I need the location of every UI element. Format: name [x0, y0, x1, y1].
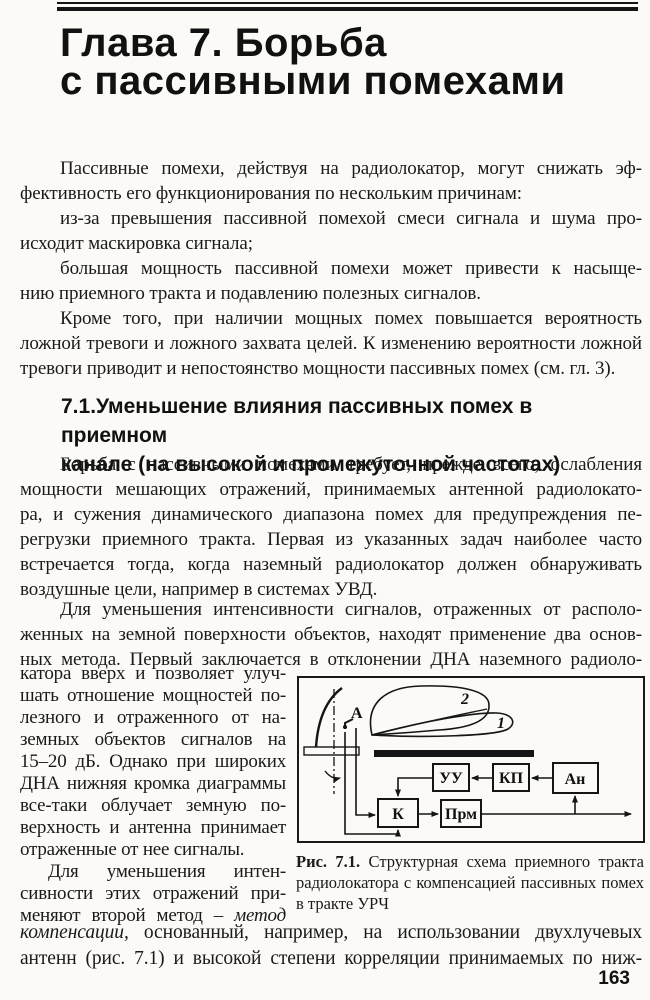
text-line: компенсации, основанный, например, на ис…	[20, 920, 642, 946]
antenna-pedestal	[304, 747, 359, 755]
left-text-column: катора вверх и позволяет улуч- шать отно…	[20, 663, 286, 927]
text-line: тревоги приводит и непостоянство мощност…	[20, 356, 642, 381]
paragraph-dva-metoda: Для уменьшения интенсивности сигналов, о…	[20, 597, 642, 672]
top-rule-thick	[57, 7, 638, 11]
text-line: антенн (рис. 7.1) и высокой степени корр…	[20, 946, 642, 972]
beam-upper-label: 2	[460, 691, 469, 708]
figure-7-1-diagram: А 2 1 УУ КП Ан К Прм	[299, 678, 639, 837]
chapter-title: Глава 7. Борьба с пассивными помехами	[60, 24, 566, 100]
text-line: регрузки приемного тракта. Первая из ука…	[20, 527, 642, 552]
link-feed-k-left	[356, 728, 375, 815]
block-uu-label: УУ	[439, 770, 463, 787]
caption-text: Структурная схема приемного тракта	[360, 852, 644, 871]
top-rule-thin	[57, 2, 638, 4]
beam-lobe-upper	[371, 686, 490, 735]
text-line: катора вверх и позволяет улуч-	[20, 663, 286, 685]
text-run-italic: компенсации,	[20, 922, 129, 943]
bottom-paragraph: компенсации, основанный, например, на ис…	[20, 920, 642, 972]
beam-lobe-lower	[372, 713, 513, 736]
link-uu-k	[398, 778, 433, 796]
paragraph-borba: Борьба с пассивными помехами требует, пр…	[20, 452, 642, 602]
text-line: земных объектов сигналов на	[20, 729, 286, 751]
caption-line: в тракте УРЧ	[296, 893, 644, 914]
caption-number: Рис. 7.1.	[296, 852, 360, 871]
text-line: ложной тревоги и ложного захвата целей. …	[20, 331, 642, 356]
text-line: Пассивные помехи, действуя на радиолокат…	[20, 156, 642, 181]
text-line: нию приемного тракта и подавлению полезн…	[20, 281, 642, 306]
text-line: ра, и сужения динамического диапазона по…	[20, 502, 642, 527]
figure-caption: Рис. 7.1. Структурная схема приемного тр…	[296, 851, 644, 914]
block-prm-label: Прм	[445, 806, 477, 823]
text-line: шать отношение мощностей по-	[20, 685, 286, 707]
book-page: Глава 7. Борьба с пассивными помехами Па…	[0, 0, 650, 1000]
text-line: встречается тогда, когда наземный радиол…	[20, 552, 642, 577]
text-line: мощности мешающих отражений, принимаемых…	[20, 477, 642, 502]
block-kp-label: КП	[499, 770, 524, 787]
text-line: верхность и антенна принимает	[20, 817, 286, 839]
text-line: фективность его функционирования по неск…	[20, 181, 642, 206]
text-line: женных на земной поверхности объектов, н…	[20, 622, 642, 647]
chapter-title-line1: Глава 7. Борьба	[60, 24, 566, 62]
figure-7-1: А 2 1 УУ КП Ан К Прм	[297, 676, 645, 843]
text-line: ДНА нижняя кромка диаграммы	[20, 773, 286, 795]
intro-paragraphs: Пассивные помехи, действуя на радиолокат…	[20, 156, 642, 381]
page-number: 163	[598, 968, 630, 990]
text-line: 15–20 дБ. Однако при широких	[20, 751, 286, 773]
caption-line: радиолокатора с компенсацией пассивных п…	[296, 872, 644, 893]
text-line: лезного и отраженного от на-	[20, 707, 286, 729]
text-line: исходит маскировка сигнала;	[20, 231, 642, 256]
text-line: Борьба с пассивными помехами требует, пр…	[20, 452, 642, 477]
text-line: большая мощность пассивной помехи может …	[20, 256, 642, 281]
caption-line: Рис. 7.1. Структурная схема приемного тр…	[296, 851, 644, 872]
text-line: Для уменьшения интен-	[20, 861, 286, 883]
antenna-reflector-arc	[316, 688, 342, 747]
text-line: отраженные от нее сигналы.	[20, 839, 286, 861]
ground-bar	[374, 750, 534, 757]
text-line: из-за превышения пассивной помехой смеси…	[20, 206, 642, 231]
beam-lower-label: 1	[497, 715, 505, 732]
text-line: все-таки облучает земную по-	[20, 795, 286, 817]
text-line: сивности этих отражений при-	[20, 883, 286, 905]
text-line: Кроме того, при наличии мощных помех пов…	[20, 306, 642, 331]
feed-point	[343, 725, 347, 729]
antenna-label: А	[351, 705, 363, 722]
block-an-label: Ан	[565, 771, 586, 788]
text-run: основанный, например, на использовании д…	[129, 922, 642, 943]
chapter-title-line2: с пассивными помехами	[60, 62, 566, 100]
section-heading-line1: 7.1.Уменьшение влияния пассивных помех в…	[61, 392, 641, 450]
text-line: Для уменьшения интенсивности сигналов, о…	[20, 597, 642, 622]
block-k-label: К	[392, 806, 404, 823]
rotation-arrow	[325, 771, 340, 778]
